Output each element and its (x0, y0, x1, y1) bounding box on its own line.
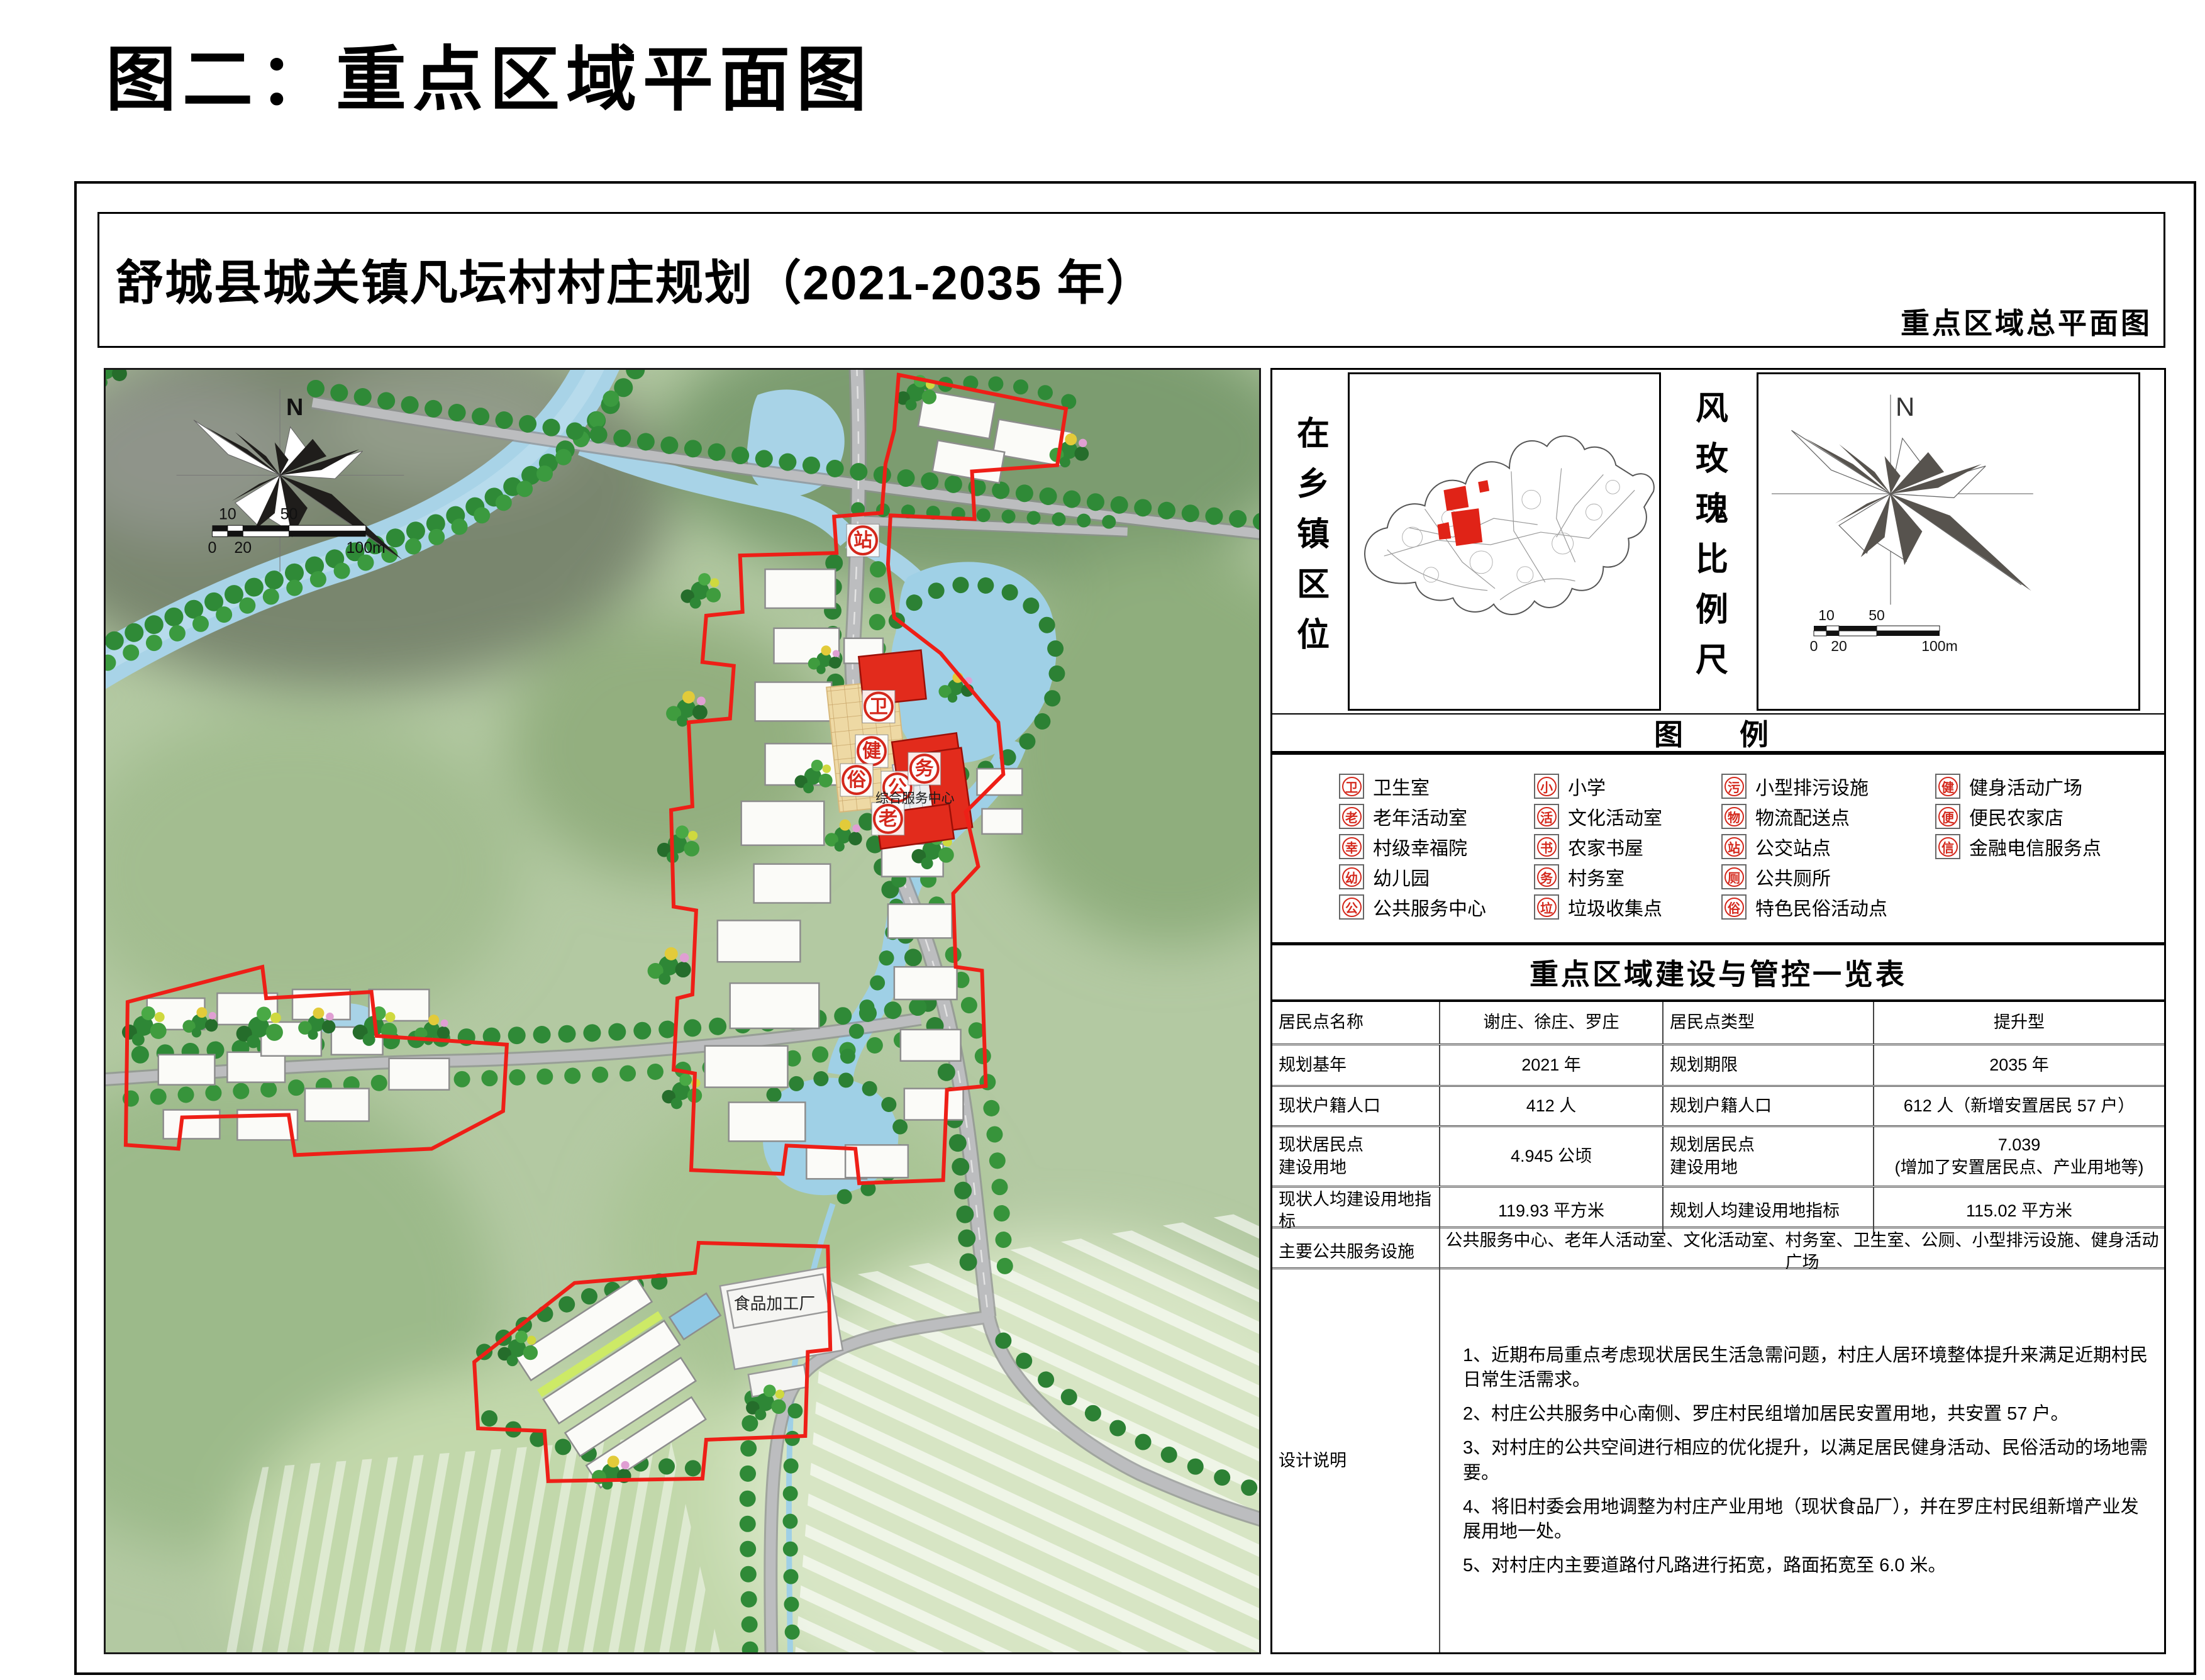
scale-50: 50 (280, 505, 298, 523)
table-row: 规划基年 2021 年 规划期限 2035 年 (1272, 1043, 2164, 1085)
table-row: 现状人均建设用地指标 119.93 平方米 规划人均建设用地指标 115.02 … (1272, 1186, 2164, 1227)
svg-text:老: 老 (879, 809, 897, 830)
cell-label: 居民点名称 (1272, 1002, 1439, 1043)
legend-item: 幸村级幸福院 (1339, 832, 1486, 862)
cell-value: 612 人（新增安置居民 57 户） (1873, 1087, 2164, 1125)
food-factory-label: 食品加工厂 (734, 1295, 816, 1313)
legend-title: 图 例 (1272, 713, 2164, 755)
svg-text:卫: 卫 (869, 696, 888, 717)
legend-item: 幼幼儿园 (1339, 862, 1486, 892)
windrose-title: 风玫瑰比例尺 (1661, 370, 1757, 713)
clinic-icon: 卫 (1339, 774, 1364, 799)
fitness-square-icon: 健 (1935, 774, 1960, 799)
scale-20: 20 (234, 539, 252, 557)
legend-item: 物物流配送点 (1721, 801, 1887, 832)
design-notes: 1、近期布局重点考虑现状居民生活急需问题，村庄人居环境整体提升来满足近期村民日常… (1439, 1269, 2164, 1652)
windrose-svg: N 10 50 0 20 100m (1758, 374, 2138, 709)
toilet-icon: 厕 (1721, 864, 1747, 889)
svg-text:20: 20 (1831, 638, 1847, 654)
outer-frame: 舒城县城关镇凡坛村村庄规划（2021-2035 年） 重点区域总平面图 (74, 181, 2196, 1675)
legend-item: 俗特色民俗活动点 (1721, 892, 1887, 922)
design-notes-label: 设计说明 (1272, 1269, 1439, 1652)
kindergarten-icon: 幼 (1339, 864, 1364, 889)
poi-busstop-icon: 站 (847, 524, 879, 557)
cell-label: 规划期限 (1662, 1045, 1873, 1085)
note-line: 2、村庄公共服务中心南侧、罗庄村民组增加居民安置用地，共安置 57 户。 (1463, 1402, 2069, 1427)
control-table: 居民点名称 谢庄、徐庄、罗庄 居民点类型 提升型 规划基年 2021 年 规划期… (1272, 1002, 2164, 1652)
garbage-point-icon: 垃 (1534, 894, 1559, 920)
village-office-icon: 务 (1534, 864, 1559, 889)
legend-item: 信金融电信服务点 (1935, 832, 2101, 862)
legend-item: 公公共服务中心 (1339, 892, 1486, 922)
table-row: 现状居民点 建设用地 4.945 公顷 规划居民点 建设用地 7.039 (增加… (1272, 1125, 2164, 1186)
legend-item: 卫卫生室 (1339, 771, 1486, 801)
svg-text:0: 0 (1810, 638, 1818, 654)
bus-stop-icon: 站 (1721, 834, 1747, 859)
legend: 卫卫生室 老老年活动室 幸村级幸福院 幼幼儿园 公公共服务中心 小小学 活文化活… (1272, 755, 2164, 945)
legend-item: 站公交站点 (1721, 832, 1887, 862)
poi-folk-icon: 俗 (840, 764, 873, 796)
township-outline (1365, 436, 1654, 615)
legend-item: 垃垃圾收集点 (1534, 892, 1662, 922)
scale-0: 0 (208, 539, 217, 557)
convenience-store-icon: 便 (1935, 804, 1960, 829)
sheet-title: 舒城县城关镇凡坛村村庄规划（2021-2035 年） (116, 244, 1155, 313)
book-house-icon: 书 (1534, 834, 1559, 859)
main-plan-map: N 10 50 0 20 100m 卫 健 俗 公 务 老 站 (104, 368, 1261, 1654)
cell-value: 7.039 (增加了安置居民点、产业用地等) (1873, 1127, 2164, 1186)
cell-label: 规划居民点 建设用地 (1662, 1127, 1873, 1186)
township-location-map (1348, 372, 1661, 711)
legend-item: 老老年活动室 (1339, 801, 1486, 832)
design-notes-row: 设计说明 1、近期布局重点考虑现状居民生活急需问题，村庄人居环境整体提升来满足近… (1272, 1267, 2164, 1652)
cell-value: 提升型 (1873, 1002, 2164, 1043)
legend-item: 务村务室 (1534, 862, 1662, 892)
svg-text:100m: 100m (1921, 638, 1958, 654)
sheet-subtitle: 重点区域总平面图 (1901, 301, 2152, 342)
note-line: 5、对村庄内主要道路付凡路进行拓宽，路面拓宽至 6.0 米。 (1463, 1554, 1947, 1578)
legend-item: 活文化活动室 (1534, 801, 1662, 832)
township-location-title: 在乡镇区位 (1272, 370, 1348, 713)
culture-room-icon: 活 (1534, 804, 1559, 829)
service-center-label: 综合服务中心 (875, 791, 955, 806)
school-icon: 小 (1534, 774, 1559, 799)
windrose-scalebar: 10 50 0 20 100m (1810, 607, 1958, 654)
logistics-icon: 物 (1721, 804, 1747, 829)
cell-label: 现状居民点 建设用地 (1272, 1127, 1439, 1186)
scale-10: 10 (219, 505, 236, 523)
cell-value: 4.945 公顷 (1439, 1127, 1662, 1186)
cell-value: 2021 年 (1439, 1045, 1662, 1085)
happiness-home-icon: 幸 (1339, 834, 1364, 859)
svg-text:俗: 俗 (847, 770, 866, 791)
township-map-svg (1350, 374, 1659, 709)
poi-fitness-icon: 健 (855, 735, 888, 767)
cell-value: 谢庄、徐庄、罗庄 (1439, 1002, 1662, 1043)
legend-item: 书农家书屋 (1534, 832, 1662, 862)
cell-value: 2035 年 (1873, 1045, 2164, 1085)
scale-100m: 100m (346, 539, 385, 557)
plan-map-svg: N 10 50 0 20 100m 卫 健 俗 公 务 老 站 (106, 370, 1259, 1652)
cell-label: 规划户籍人口 (1662, 1087, 1873, 1125)
note-line: 1、近期布局重点考虑现状居民生活急需问题，村庄人居环境整体提升来满足近期村民日常… (1463, 1343, 2152, 1393)
cell-label: 规划基年 (1272, 1045, 1439, 1085)
poi-elderly-icon: 老 (872, 803, 904, 835)
legend-item: 小小学 (1534, 771, 1662, 801)
title-band: 舒城县城关镇凡坛村村庄规划（2021-2035 年） 重点区域总平面图 (97, 212, 2165, 348)
table-row: 居民点名称 谢庄、徐庄、罗庄 居民点类型 提升型 (1272, 1002, 2164, 1043)
public-service-icon: 公 (1339, 894, 1364, 920)
legend-item: 健健身活动广场 (1935, 771, 2101, 801)
folk-activity-icon: 俗 (1721, 894, 1747, 920)
legend-item: 便便民农家店 (1935, 801, 2101, 832)
cell-label: 居民点类型 (1662, 1002, 1873, 1043)
cell-value: 412 人 (1439, 1087, 1662, 1125)
svg-text:10: 10 (1818, 607, 1835, 623)
svg-text:务: 务 (915, 759, 934, 779)
windrose-north-label: N (1896, 392, 1914, 421)
cell-label: 现状户籍人口 (1272, 1087, 1439, 1125)
poi-clinic-icon: 卫 (862, 691, 895, 723)
sewage-icon: 污 (1721, 774, 1747, 799)
info-panel: 在乡镇区位 (1270, 368, 2166, 1654)
poi-office-icon: 务 (908, 752, 941, 785)
svg-text:健: 健 (862, 741, 881, 762)
svg-text:50: 50 (1869, 607, 1885, 623)
elderly-room-icon: 老 (1339, 804, 1364, 829)
table-row: 主要公共服务设施 公共服务中心、老年人活动室、文化活动室、村务室、卫生室、公厕、… (1272, 1227, 2164, 1267)
map-north-label: N (286, 394, 303, 421)
page-title: 图二：重点区域平面图 (106, 23, 873, 125)
windrose-box: N 10 50 0 20 100m (1757, 372, 2140, 711)
finance-telecom-icon: 信 (1935, 834, 1960, 859)
table-row: 现状户籍人口 412 人 规划户籍人口 612 人（新增安置居民 57 户） (1272, 1085, 2164, 1125)
note-line: 3、对村庄的公共空间进行相应的优化提升，以满足居民健身活动、民俗活动的场地需要。 (1463, 1436, 2152, 1485)
table-title: 重点区域建设与管控一览表 (1272, 945, 2164, 1002)
farm-fields-east (795, 1210, 1259, 1652)
svg-text:站: 站 (853, 530, 872, 551)
legend-item: 污小型排污设施 (1721, 771, 1887, 801)
note-line: 4、将旧村委会用地调整为村庄产业用地（现状食品厂），并在罗庄村民组新增产业发展用… (1463, 1495, 2152, 1544)
legend-item: 厕公共厕所 (1721, 862, 1887, 892)
